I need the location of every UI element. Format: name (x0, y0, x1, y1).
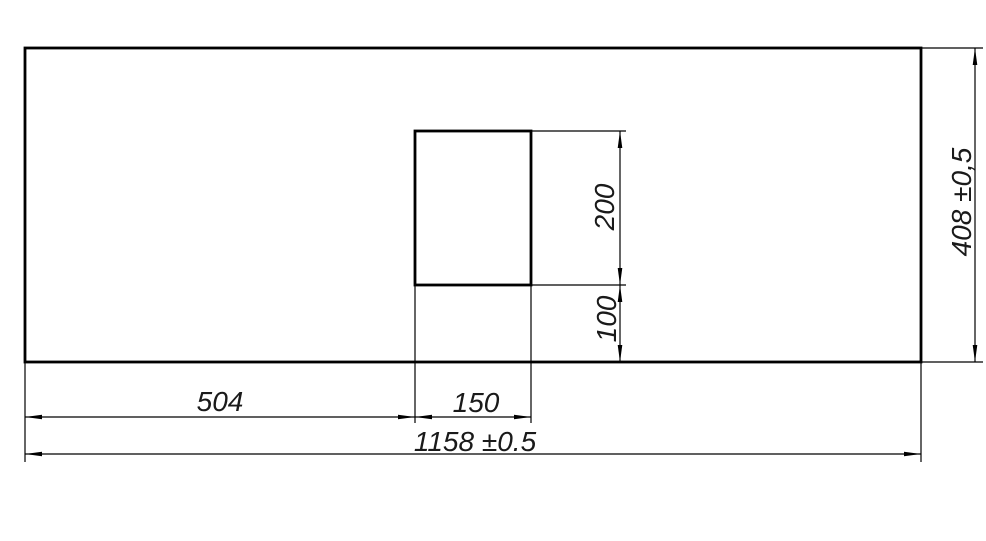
drawing-canvas: 504 150 1158 ±0.5 200 100 408 ±0,5 (0, 0, 986, 541)
dim-label-100: 100 (591, 295, 622, 342)
dim-label-408: 408 ±0,5 (946, 147, 977, 256)
dimension-arrow-150-right (514, 415, 531, 420)
dimension-arrow-100-bottom (618, 345, 623, 362)
dimension-arrow-408-top (973, 48, 978, 65)
part-outline-rect (25, 48, 921, 362)
dimension-arrow-200-top (618, 131, 623, 148)
dimension-arrow-504-right (398, 415, 415, 420)
dim-label-504: 504 (197, 386, 244, 417)
dim-label-200: 200 (589, 183, 620, 231)
dimension-arrow-150-left (415, 415, 432, 420)
dimension-arrow-1158-left (25, 452, 42, 457)
dimension-arrow-1158-right (904, 452, 921, 457)
dimension-arrow-408-bottom (973, 345, 978, 362)
dim-label-150: 150 (453, 387, 500, 418)
dimension-arrow-504-left (25, 415, 42, 420)
dim-label-1158: 1158 ±0.5 (414, 426, 537, 457)
dimension-arrow-200-bottom (618, 268, 623, 285)
cutout-rect (415, 131, 531, 285)
technical-drawing: 504 150 1158 ±0.5 200 100 408 ±0,5 (0, 0, 986, 541)
